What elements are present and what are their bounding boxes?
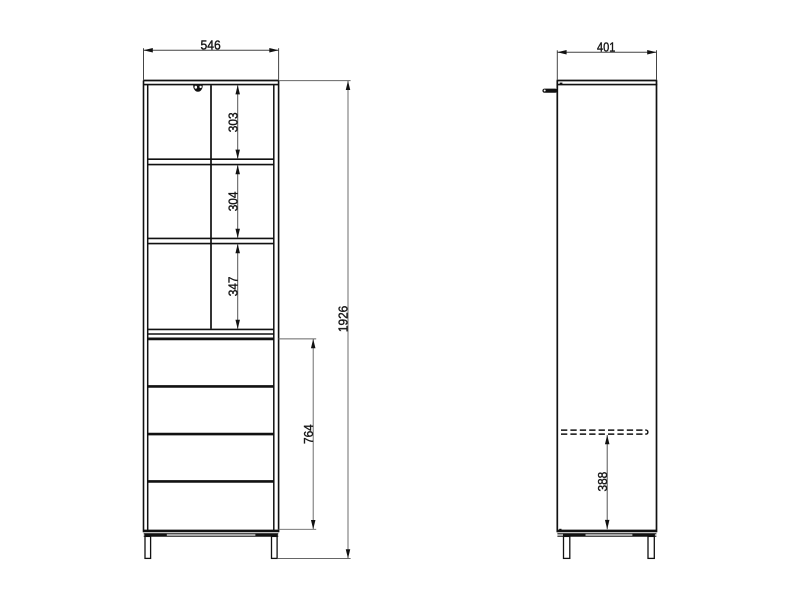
svg-text:304: 304 bbox=[225, 192, 240, 212]
svg-text:303: 303 bbox=[225, 112, 240, 132]
svg-text:347: 347 bbox=[225, 277, 240, 297]
svg-text:388: 388 bbox=[595, 472, 610, 492]
svg-text:764: 764 bbox=[301, 424, 316, 444]
svg-text:1926: 1926 bbox=[335, 306, 350, 332]
svg-text:401: 401 bbox=[597, 40, 615, 55]
svg-text:546: 546 bbox=[201, 37, 221, 52]
